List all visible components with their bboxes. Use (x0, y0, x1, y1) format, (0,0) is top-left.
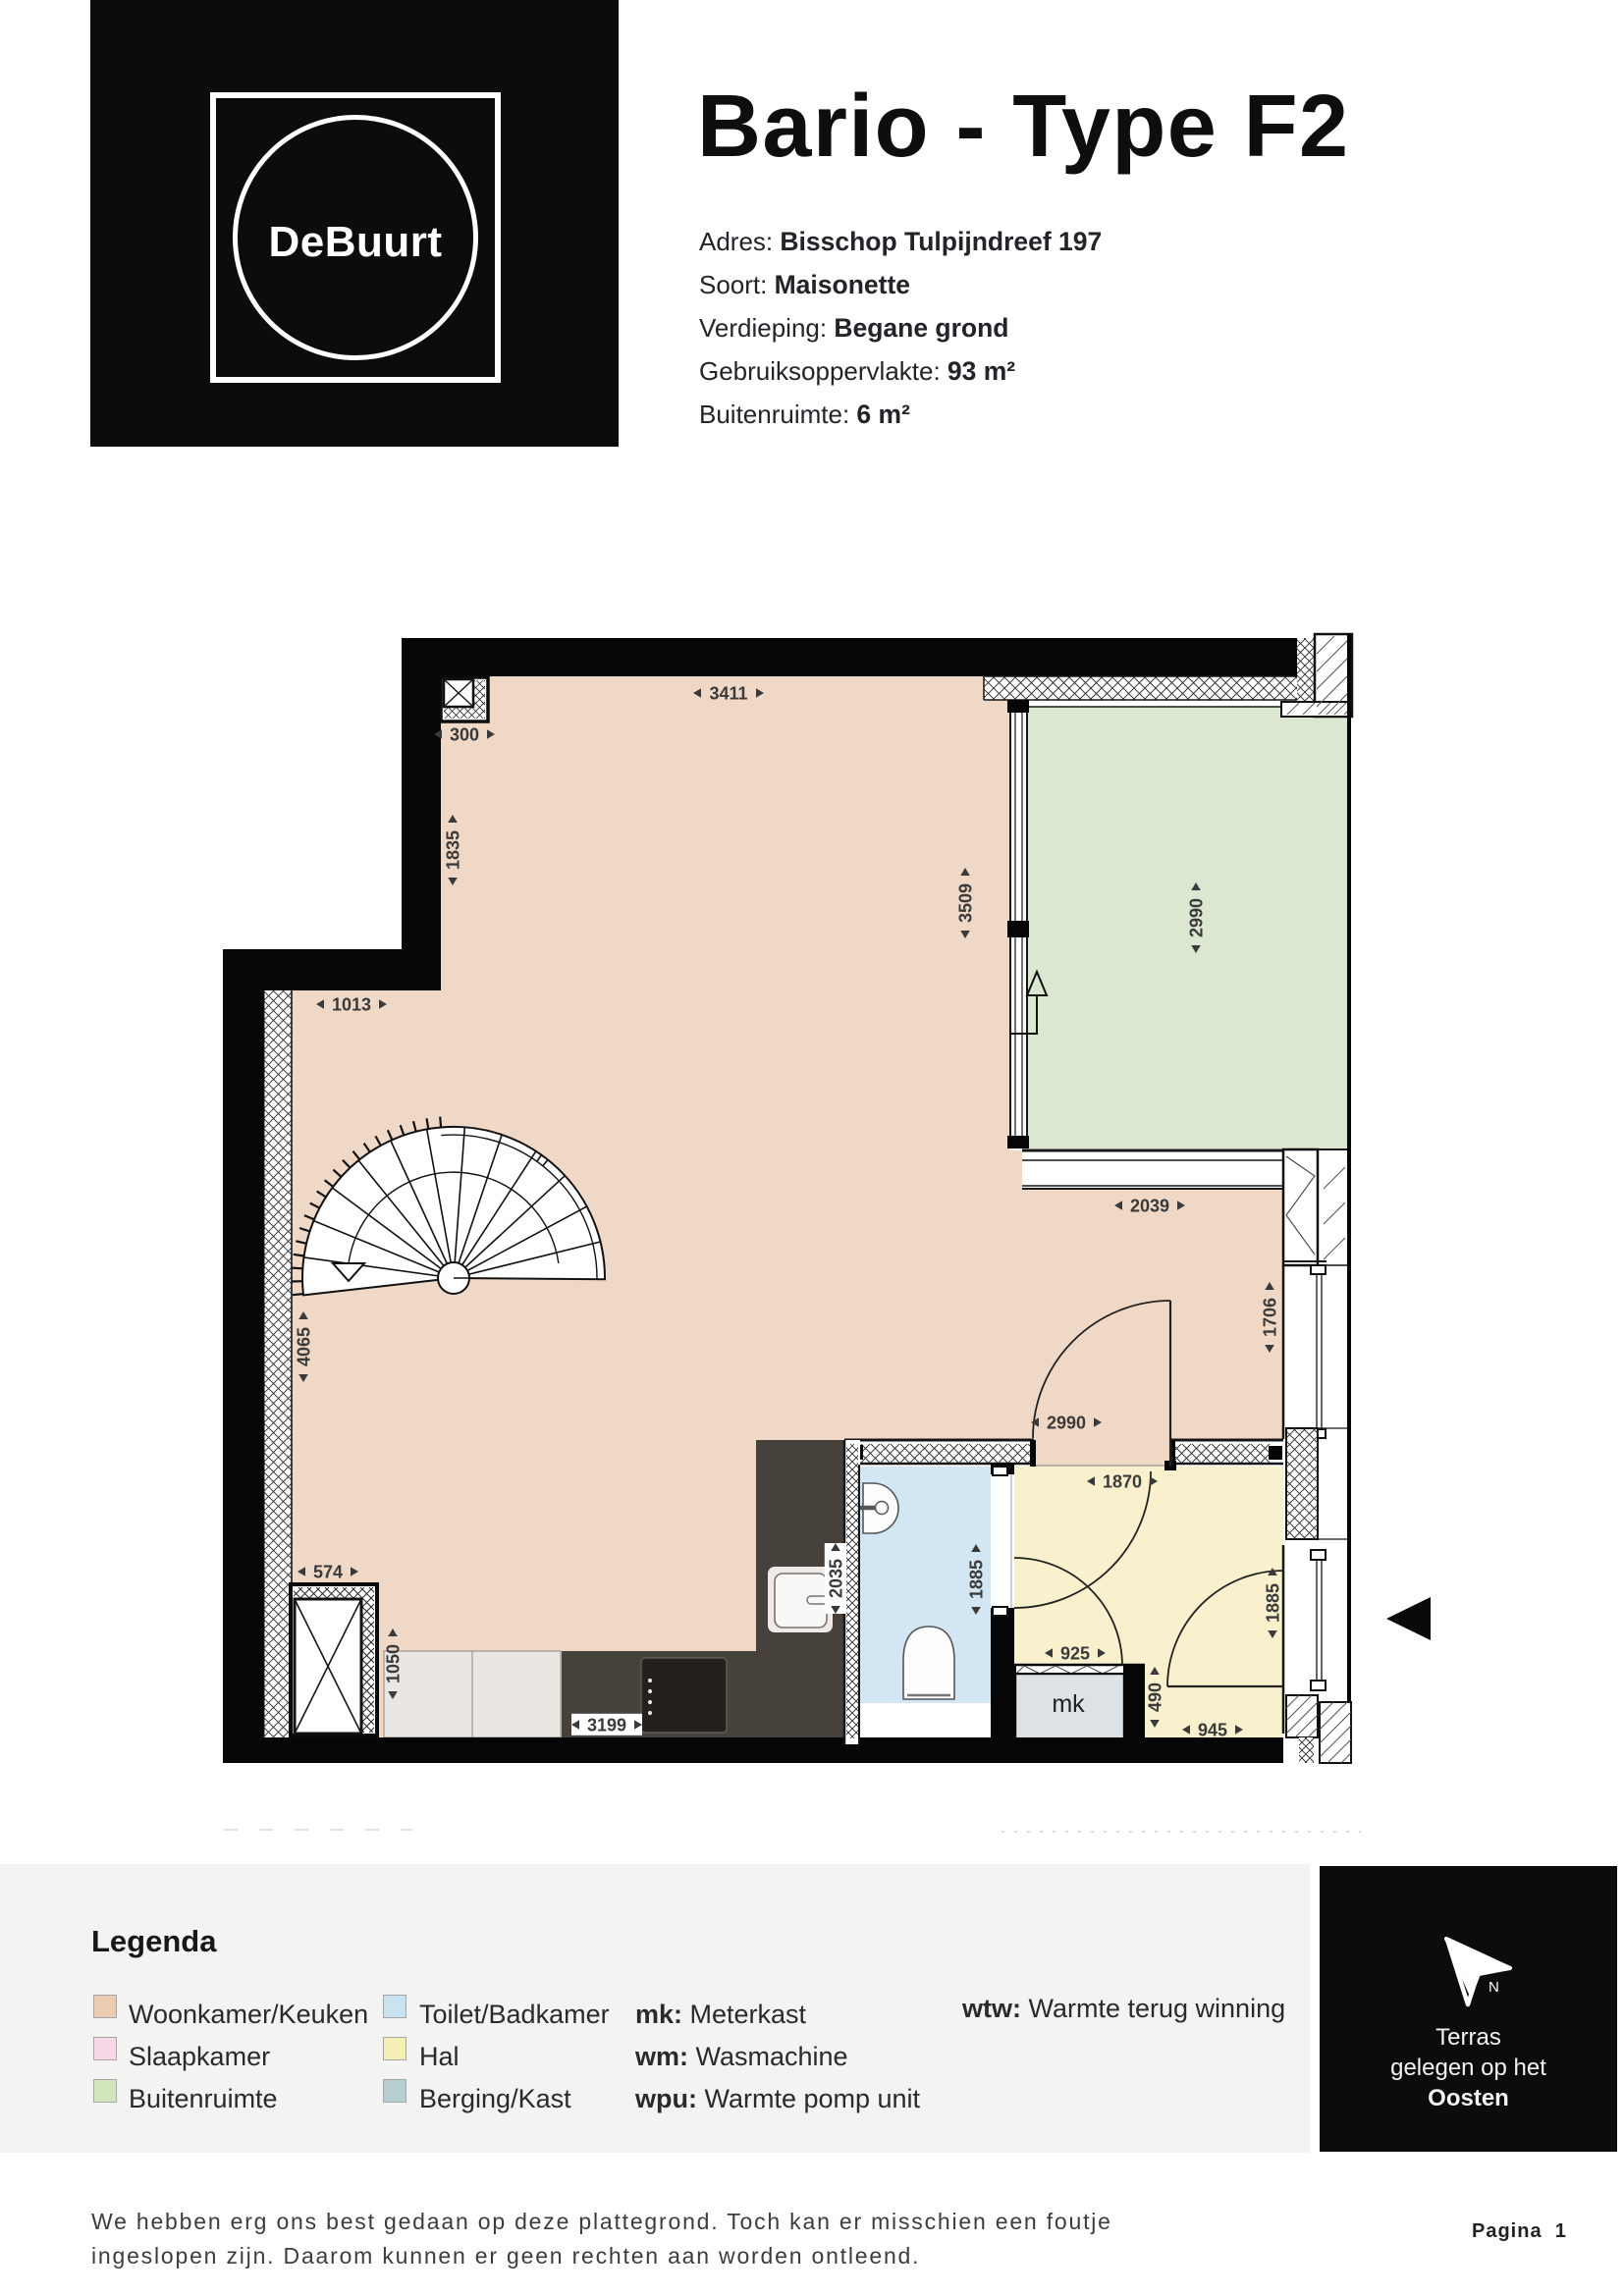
svg-text:490: 490 (1146, 1682, 1165, 1712)
svg-text:2990: 2990 (1187, 898, 1207, 937)
svg-text:N: N (1489, 1979, 1499, 1996)
svg-text:1013: 1013 (332, 995, 371, 1015)
svg-text:574: 574 (313, 1563, 343, 1582)
svg-text:1885: 1885 (967, 1560, 987, 1599)
svg-text:3199: 3199 (587, 1716, 626, 1735)
svg-text:mk: mk (1052, 1690, 1085, 1718)
svg-text:1885: 1885 (1264, 1583, 1283, 1623)
svg-text:1870: 1870 (1103, 1472, 1142, 1492)
svg-text:1706: 1706 (1261, 1298, 1280, 1337)
svg-text:925: 925 (1060, 1644, 1090, 1664)
svg-text:1050: 1050 (384, 1644, 404, 1683)
svg-text:4065: 4065 (295, 1327, 314, 1366)
svg-text:3509: 3509 (956, 883, 976, 923)
svg-text:1835: 1835 (444, 830, 463, 870)
svg-text:3411: 3411 (709, 684, 747, 704)
svg-text:2990: 2990 (1047, 1414, 1086, 1433)
svg-text:2039: 2039 (1130, 1197, 1169, 1216)
svg-text:945: 945 (1198, 1721, 1227, 1740)
svg-text:300: 300 (450, 725, 479, 745)
svg-text:2035: 2035 (827, 1559, 846, 1598)
